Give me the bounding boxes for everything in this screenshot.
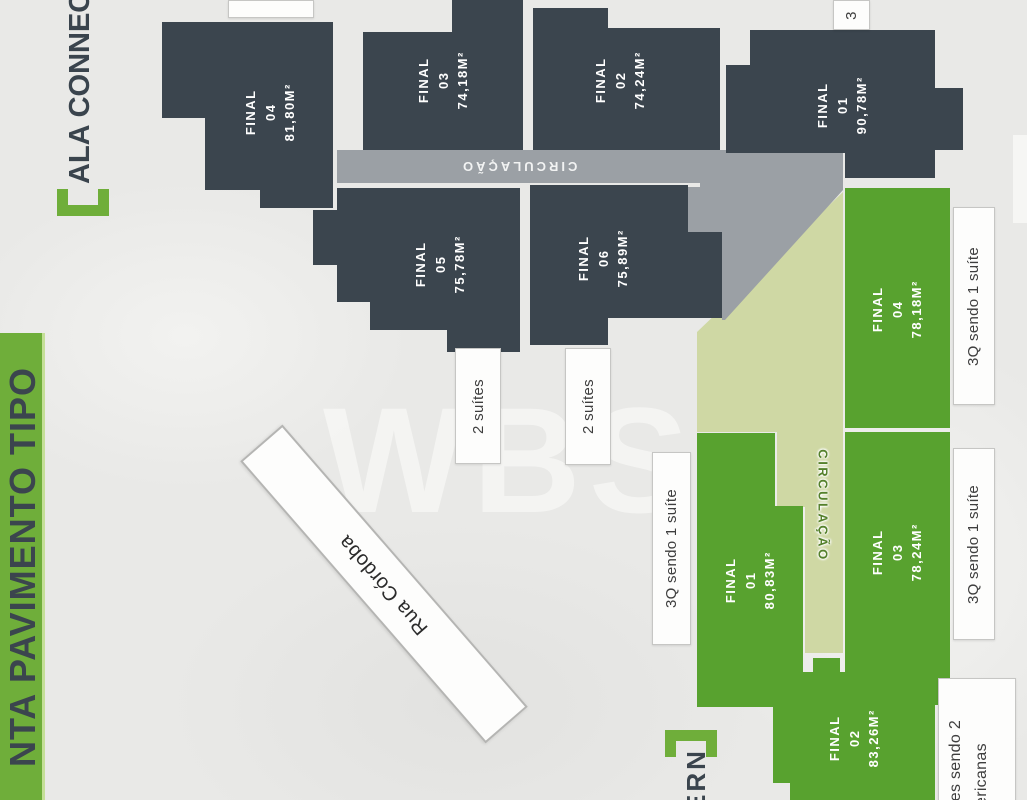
tag-top-cut — [228, 0, 314, 18]
unit-area: 80,83M² — [760, 551, 780, 609]
floor-plan-canvas: WBS CIRCULAÇÃO FINAL 04 81,80M² FINAL 03… — [0, 0, 1027, 800]
unit-area: 74,24M² — [630, 51, 650, 109]
tag-3q-right-bottom: 3Q sendo 1 suíte — [953, 448, 995, 640]
green-bracket-icon — [57, 189, 109, 216]
unit-number: 04 — [888, 280, 908, 338]
unit-name: FINAL — [241, 83, 261, 141]
unit-dark-final-06-label: FINAL 06 75,89M² — [528, 192, 678, 324]
unit-number: 03 — [888, 523, 908, 581]
tag-3q-right-top: 3Q sendo 1 suíte — [953, 207, 995, 405]
tag-bottom-right-line2: ericanas — [973, 743, 991, 800]
unit-area: 78,18M² — [907, 280, 927, 338]
unit-dark-final-04-label: FINAL 04 81,80M² — [200, 35, 340, 190]
unit-number: 02 — [611, 51, 631, 109]
unit-name: FINAL — [591, 51, 611, 109]
corridor-green-wing-label: CIRCULAÇÃO — [797, 418, 849, 593]
unit-name: FINAL — [868, 523, 888, 581]
unit-area: 81,80M² — [280, 83, 300, 141]
unit-name: FINAL — [825, 709, 845, 767]
unit-number: 05 — [430, 235, 450, 293]
wing-header-connect: ALA CONNEC — [64, 0, 97, 184]
unit-area: 90,78M² — [852, 76, 872, 134]
unit-number: 06 — [593, 229, 613, 287]
unit-number: 01 — [833, 76, 853, 134]
unit-name: FINAL — [721, 551, 741, 609]
unit-area: 75,78M² — [450, 235, 470, 293]
unit-dark-final-02-label: FINAL 02 74,24M² — [533, 15, 708, 145]
unit-area: 78,24M² — [907, 523, 927, 581]
unit-number: 04 — [260, 83, 280, 141]
paper-highlight — [1013, 135, 1027, 223]
watermark-text: WBS — [323, 374, 697, 547]
unit-green-final-04-label: FINAL 04 78,18M² — [845, 195, 950, 423]
unit-green-final-02-label: FINAL 02 83,26M² — [773, 678, 935, 798]
tag-top-3: 3 — [833, 0, 870, 30]
unit-dark-final-03-label: FINAL 03 74,18M² — [363, 15, 523, 145]
unit-area: 74,18M² — [453, 51, 473, 109]
unit-number: 03 — [433, 51, 453, 109]
unit-name: FINAL — [414, 51, 434, 109]
wing-header-modern-fragment: ERN — [681, 748, 712, 800]
tag-3q-left: 3Q sendo 1 suíte — [652, 452, 691, 645]
unit-dark-final-01-label: FINAL 01 90,78M² — [755, 35, 930, 175]
unit-area: 75,89M² — [613, 229, 633, 287]
tag-2-suites-b: 2 suítes — [565, 348, 611, 465]
unit-name: FINAL — [813, 76, 833, 134]
unit-green-final-03-label: FINAL 03 78,24M² — [845, 440, 950, 665]
unit-dark-final-05-label: FINAL 05 75,78M² — [355, 198, 525, 330]
unit-name: FINAL — [574, 229, 594, 287]
unit-number: 02 — [844, 709, 864, 767]
corridor-dark-wing-label: CIRCULAÇÃO — [337, 150, 700, 183]
tag-2-suites-a: 2 suítes — [455, 348, 501, 464]
unit-green-final-01-label: FINAL 01 80,83M² — [697, 478, 803, 683]
unit-name: FINAL — [868, 280, 888, 338]
unit-number: 01 — [740, 551, 760, 609]
page-title: NTA PAVIMENTO TIPO — [0, 333, 45, 800]
unit-name: FINAL — [411, 235, 431, 293]
unit-area: 83,26M² — [864, 709, 884, 767]
tag-bottom-right-line1: tes sendo 2 — [947, 720, 965, 800]
